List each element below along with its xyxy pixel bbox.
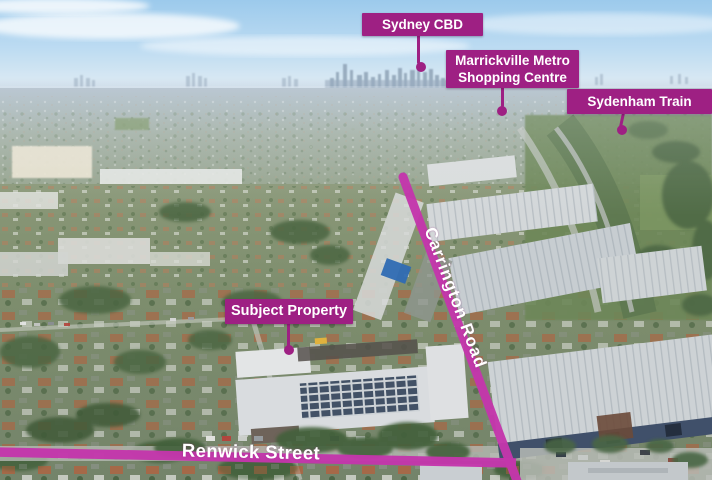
leader-subject-property <box>287 323 290 347</box>
callout-subject-property-label: Subject Property <box>231 303 347 320</box>
callout-marrickville-metro-label: Marrickville Metro Shopping Centre <box>449 52 576 86</box>
callout-sydney-cbd-label: Sydney CBD <box>382 16 463 33</box>
dot-sydenham <box>617 125 627 135</box>
aerial-photo-page: Carrington Road Renwick Street Sydney CB… <box>0 0 712 480</box>
dot-sydney-cbd <box>416 62 426 72</box>
leader-marrickville <box>501 86 504 107</box>
callout-sydenham-train: Sydenham Train <box>567 89 712 114</box>
callout-marrickville-metro: Marrickville Metro Shopping Centre <box>446 50 579 88</box>
callout-sydney-cbd: Sydney CBD <box>362 13 483 36</box>
callout-subject-property: Subject Property <box>225 299 353 324</box>
dot-marrickville <box>497 106 507 116</box>
leader-sydney-cbd <box>417 35 420 64</box>
dot-subject-property <box>284 345 294 355</box>
aerial-photo <box>0 0 712 480</box>
callout-sydenham-train-label: Sydenham Train <box>587 93 691 110</box>
street-label-renwick-street: Renwick Street <box>182 440 321 465</box>
